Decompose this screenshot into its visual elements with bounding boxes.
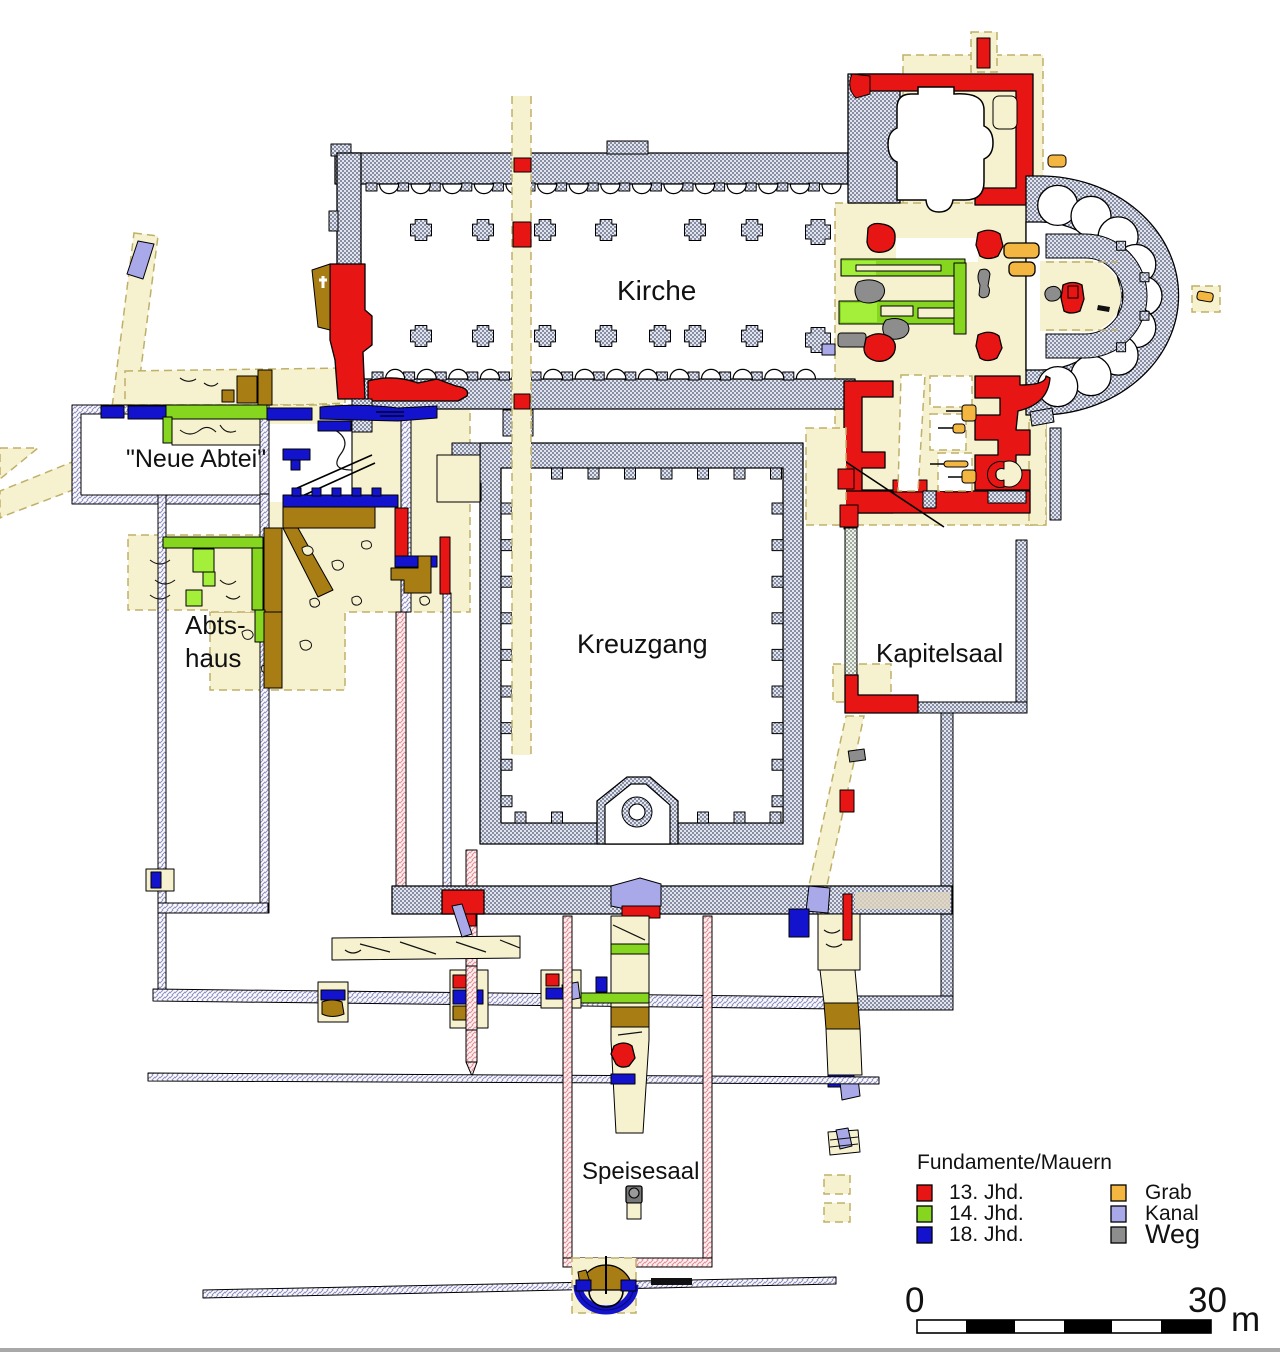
svg-text:haus: haus	[185, 643, 241, 673]
svg-text:Weg: Weg	[1145, 1219, 1200, 1249]
svg-text:Kirche: Kirche	[617, 275, 696, 306]
svg-text:Abts-: Abts-	[185, 610, 246, 640]
svg-text:Kreuzgang: Kreuzgang	[577, 629, 708, 659]
svg-text:0: 0	[905, 1281, 924, 1320]
svg-text:m: m	[1231, 1300, 1260, 1339]
svg-text:30: 30	[1188, 1281, 1227, 1320]
svg-text:13. Jhd.: 13. Jhd.	[949, 1181, 1024, 1204]
svg-text:Fundamente/Mauern: Fundamente/Mauern	[917, 1151, 1112, 1174]
svg-text:Speisesaal: Speisesaal	[582, 1158, 699, 1185]
svg-text:18. Jhd.: 18. Jhd.	[949, 1223, 1024, 1246]
svg-text:"Neue Abtei": "Neue Abtei"	[126, 445, 266, 473]
svg-text:Grab: Grab	[1145, 1181, 1192, 1204]
svg-text:Kapitelsaal: Kapitelsaal	[876, 638, 1003, 668]
svg-text:14. Jhd.: 14. Jhd.	[949, 1202, 1024, 1225]
